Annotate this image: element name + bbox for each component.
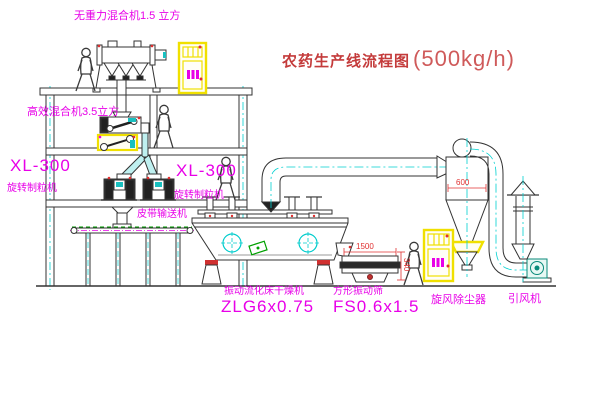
label-cyclone: 旋风除尘器 (431, 295, 486, 306)
granulator-discharge-pipe (112, 207, 133, 228)
person-figure-top-platform (76, 48, 95, 91)
label-fan: 引风机 (508, 294, 541, 305)
granulator-left (101, 177, 137, 200)
label-sieve-name: 方形振动筛 (333, 287, 383, 297)
belt-conveyor (70, 227, 194, 286)
label-dryer-name: 振动流化床干燥机 (224, 287, 304, 297)
dimension-sieve-height: 340 (402, 258, 410, 271)
title-text: 农药生产线流程图 (282, 50, 410, 71)
label-granulator-left-model: XL-300 (10, 157, 71, 174)
gravity-free-mixer (93, 41, 166, 95)
diagram-title: 农药生产线流程图 (500kg/h) (282, 46, 515, 72)
induced-draft-fan (523, 259, 551, 282)
label-granulator-left-name: 旋转制粒机 (7, 184, 57, 194)
title-capacity: (500kg/h) (413, 46, 515, 72)
label-granulator-right-model: XL-300 (176, 162, 237, 179)
label-gravity-mixer: 无重力混合机1.5 立方 (74, 11, 180, 22)
dimension-sieve-length: 1500 (356, 243, 374, 251)
control-cabinet-bottom (424, 230, 453, 281)
label-dryer-model: ZLG6x0.75 (221, 298, 314, 315)
label-sieve-model: FS0.6x1.5 (333, 298, 420, 315)
granulator-right (140, 177, 176, 200)
dimension-cyclone-diameter: 600 (456, 179, 469, 187)
label-belt-conveyor: 皮带输送机 (137, 210, 187, 220)
control-cabinet-top (179, 43, 206, 93)
label-high-efficiency-mixer: 高效混合机3.5立方 (27, 107, 119, 118)
diagram-page: 农药生产线流程图 (500kg/h) 无重力混合机1.5 立方 高效混合机3.5… (0, 0, 600, 403)
label-granulator-right-name: 旋转制粒机 (174, 191, 224, 201)
